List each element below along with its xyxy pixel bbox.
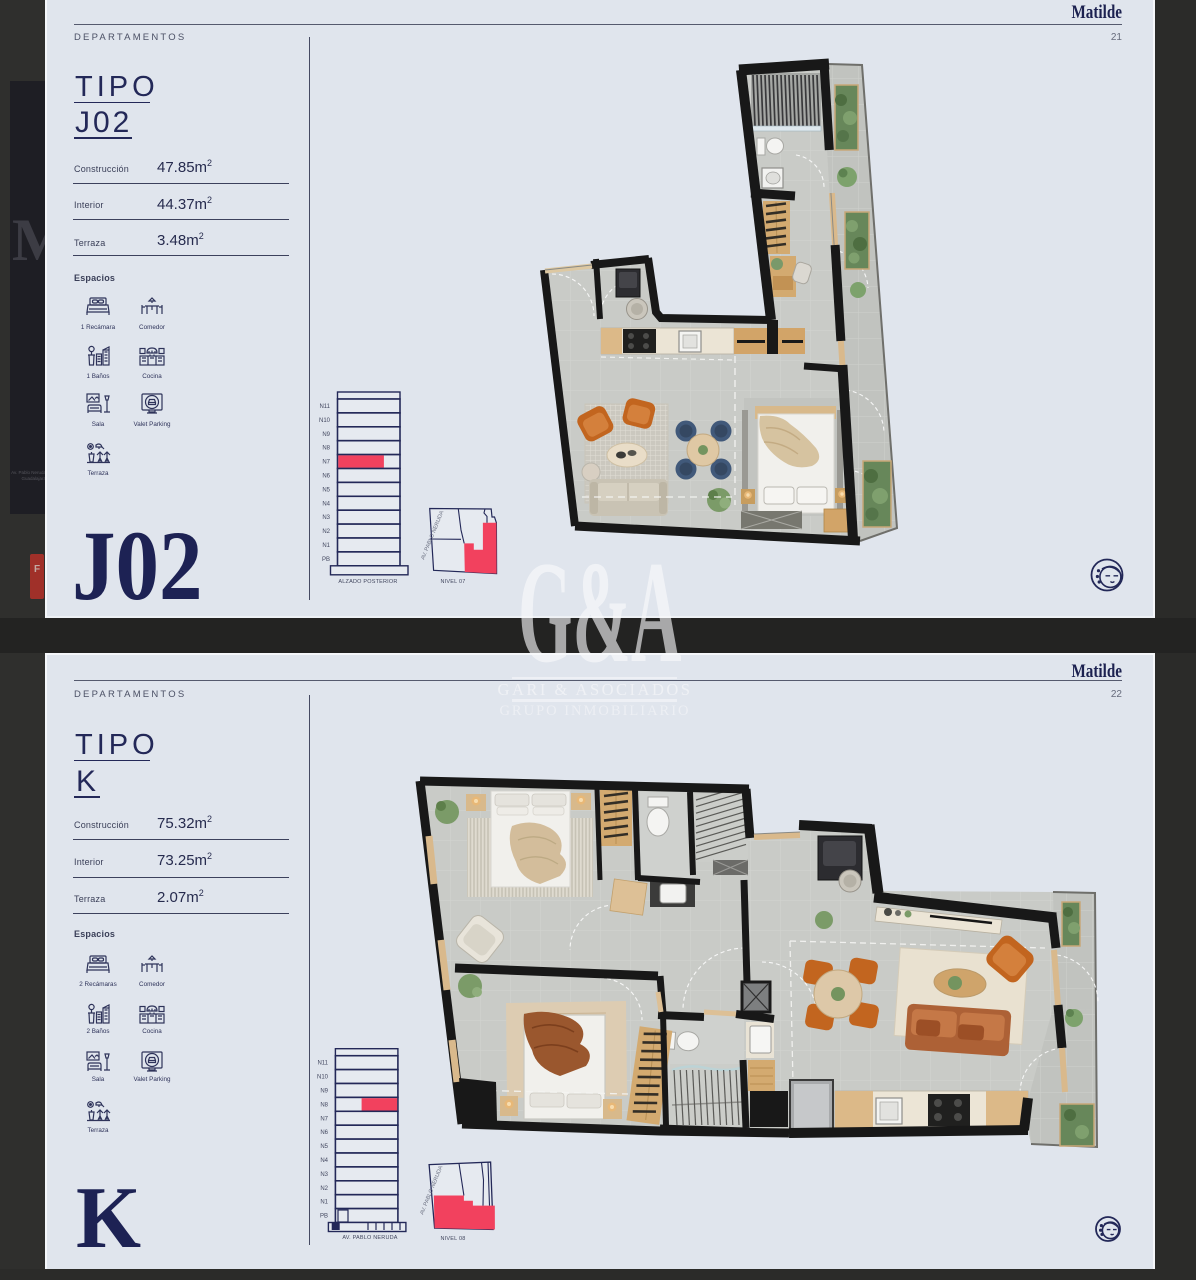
svg-text:N6: N6	[320, 1130, 328, 1136]
svg-text:N7: N7	[322, 460, 330, 466]
svg-text:N4: N4	[322, 501, 330, 507]
svg-text:N9: N9	[322, 432, 330, 438]
svg-text:N9: N9	[320, 1089, 328, 1095]
svg-text:PB: PB	[322, 557, 330, 563]
svg-text:N3: N3	[320, 1172, 328, 1178]
svg-text:N1: N1	[322, 543, 330, 549]
svg-text:N8: N8	[322, 446, 330, 452]
svg-text:N2: N2	[320, 1186, 328, 1192]
svg-text:N5: N5	[322, 487, 330, 493]
svg-text:N10: N10	[319, 418, 331, 424]
svg-text:N3: N3	[322, 515, 330, 521]
svg-text:N11: N11	[317, 1061, 328, 1067]
svg-text:N1: N1	[320, 1200, 328, 1206]
svg-text:PB: PB	[320, 1214, 328, 1220]
svg-text:N6: N6	[322, 474, 330, 480]
svg-text:N11: N11	[319, 404, 330, 410]
svg-text:N2: N2	[322, 529, 330, 535]
svg-text:N10: N10	[317, 1075, 329, 1081]
svg-text:N8: N8	[320, 1102, 328, 1108]
svg-text:N4: N4	[320, 1158, 328, 1164]
svg-text:N5: N5	[320, 1144, 328, 1150]
svg-text:N7: N7	[320, 1116, 328, 1122]
